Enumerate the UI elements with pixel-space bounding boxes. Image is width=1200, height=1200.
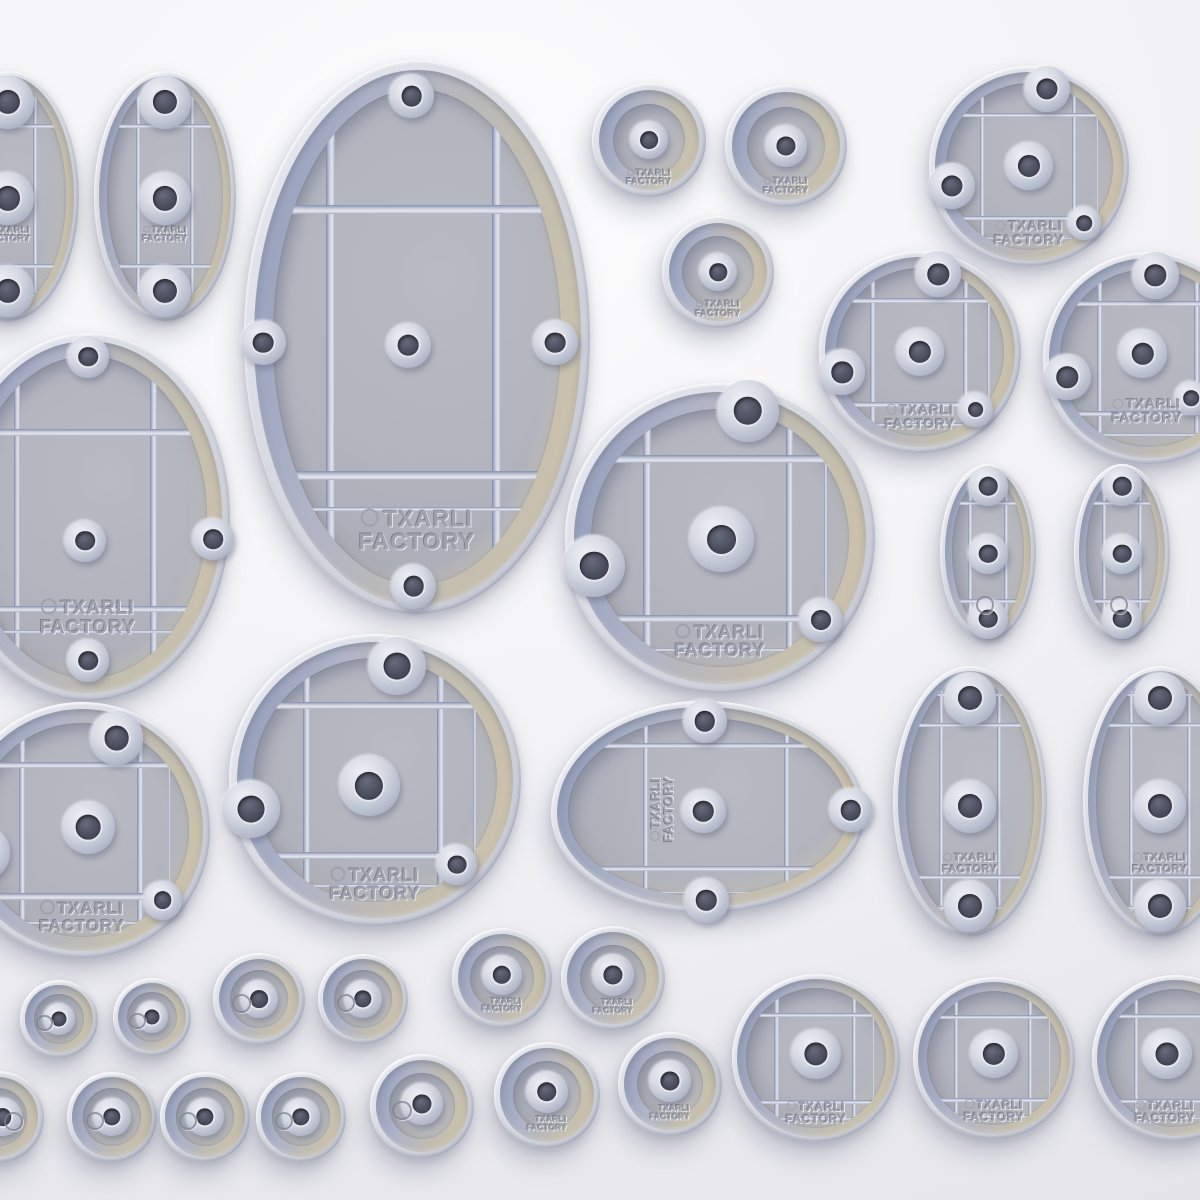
magnet-hole [90, 711, 144, 765]
magnet-hole-center [1018, 155, 1040, 177]
txarli-logo-icon [943, 853, 952, 862]
base-detail-layer: TXARLIFACTORY [913, 977, 1075, 1139]
brand-line-1: TXARLI [359, 507, 476, 530]
brand-engraving: TXARLIFACTORY [482, 997, 523, 1014]
txarli-logo-icon [886, 404, 897, 415]
base-detail-layer: TXARLIFACTORY [725, 85, 847, 207]
magnet-hole [139, 76, 192, 129]
magnet-hole [67, 336, 110, 379]
brand-line-2: FACTORY [40, 618, 136, 637]
brand-line-2: FACTORY [527, 1125, 568, 1133]
brand-word-1: TXARLI [1144, 853, 1187, 865]
magnet-hole [944, 880, 996, 932]
magnet-hole-center [203, 529, 223, 549]
magnet-hole-center [398, 335, 419, 356]
base-round-grid-center-large: TXARLIFACTORY [565, 383, 875, 693]
magnet-hole-center [0, 186, 20, 210]
brand-line-1: TXARLI [39, 900, 125, 918]
base-round-small-b7: TXARLIFACTORY [618, 1032, 722, 1136]
brand-line-1: TXARLI [993, 219, 1064, 233]
base-round-grid-right-a: TXARLIFACTORY [819, 251, 1021, 453]
magnet-hole-center [76, 815, 101, 840]
base-detail-layer: TXARLIFACTORY [1083, 666, 1200, 936]
base-round-plain-med-2: TXARLIFACTORY [725, 85, 847, 207]
brand-line-2: FACTORY [359, 531, 476, 554]
magnet-hole-center [580, 552, 609, 581]
magnet-hole-center [383, 653, 410, 680]
magnet-hole-center [804, 1042, 827, 1065]
magnet-hole [1044, 354, 1091, 401]
brand-word-1: TXARLI [58, 899, 124, 918]
magnet-hole [389, 74, 434, 119]
brand-line-2: FACTORY [593, 1007, 634, 1015]
magnet-hole-center [250, 990, 268, 1008]
base-round-mini-b3 [160, 1072, 250, 1162]
brand-engraving: TXARLIFACTORY [942, 853, 998, 876]
base-round-grid-bottom-3-cut: TXARLIFACTORY [1092, 975, 1200, 1141]
magnet-hole-center [237, 796, 264, 823]
brand-word-1: TXARLI [773, 176, 808, 186]
base-detail-layer [213, 953, 305, 1045]
base-round-grid-left-cut: TXARLIFACTORY [0, 702, 210, 958]
brand-engraving: TXARLIFACTORY [142, 225, 188, 244]
base-detail-layer [370, 1054, 474, 1158]
magnet-hole-center [941, 175, 962, 196]
magnet-hole [0, 265, 34, 318]
magnet-hole-center [640, 131, 658, 149]
base-detail-layer [67, 1072, 157, 1162]
magnet-hole [944, 672, 996, 724]
magnet-hole [143, 881, 181, 919]
magnet-hole [64, 520, 107, 563]
base-round-small-b5 [370, 1054, 474, 1158]
base-round-mini-b4 [256, 1072, 346, 1162]
magnet-hole [1132, 252, 1179, 299]
magnet-hole [1024, 66, 1070, 112]
base-detail-layer: TXARLIFACTORY [94, 71, 236, 321]
brand-word-1: TXARLI [694, 622, 764, 642]
brand-word-1: TXARLI [705, 299, 740, 309]
magnet-hole [970, 1030, 1019, 1079]
magnet-hole [139, 265, 192, 318]
magnet-hole [391, 564, 436, 609]
base-oval-small-edge-left: TXARLIFACTORY [0, 71, 79, 321]
base-detail-layer [318, 954, 408, 1044]
brand-line-2: FACTORY [1132, 865, 1188, 876]
txarli-logo-icon [976, 596, 993, 613]
magnet-hole-center [104, 725, 129, 750]
magnet-hole [1005, 142, 1053, 190]
magnet-hole [1067, 206, 1101, 240]
brand-line-1: TXARLI [674, 623, 765, 641]
magnet-hole-center [78, 651, 98, 671]
magnet-hole [592, 954, 634, 996]
magnet-hole-center [1148, 894, 1172, 918]
brand-line-2: FACTORY [39, 917, 125, 934]
magnet-hole-center [958, 894, 982, 918]
magnet-hole [241, 320, 286, 365]
brand-engraving: TXARLIFACTORY [649, 776, 676, 842]
magnet-hole-center [811, 610, 831, 630]
magnet-hole [0, 76, 34, 129]
magnet-hole-center [695, 711, 715, 731]
base-oval-egg-center: TXARLIFACTORY [551, 701, 865, 913]
magnet-hole [681, 789, 726, 834]
base-round-mini-a2 [113, 978, 191, 1056]
magnet-hole [222, 780, 280, 838]
magnet-hole-center [75, 531, 95, 551]
base-detail-layer: TXARLIFACTORY [565, 383, 875, 693]
magnet-hole [0, 172, 34, 225]
base-round-mini-a3 [213, 953, 305, 1045]
brand-word-1: TXARLI [636, 168, 671, 178]
base-detail-layer: TXARLIFACTORY [0, 71, 79, 321]
brand-engraving: TXARLIFACTORY [329, 867, 420, 904]
magnet-hole [563, 535, 625, 597]
txarli-logo-icon [129, 1013, 145, 1029]
magnet-hole-center [1113, 477, 1132, 496]
base-round-mini-a1 [20, 980, 98, 1058]
base-detail-layer: TXARLIFACTORY [662, 216, 774, 328]
magnet-hole-center [154, 892, 172, 910]
magnet-hole-center [153, 186, 177, 210]
brand-engraving: TXARLIFACTORY [527, 1116, 568, 1133]
txarli-logo-icon [1133, 853, 1142, 862]
magnet-hole-center [1036, 78, 1057, 99]
txarli-logo-icon [676, 624, 691, 639]
magnet-hole-center [958, 794, 982, 818]
magnet-hole [819, 349, 865, 395]
base-round-plain-med-3: TXARLIFACTORY [662, 216, 774, 328]
base-round-small-b6: TXARLIFACTORY [494, 1042, 600, 1148]
txarli-logo-icon [482, 997, 489, 1004]
txarli-logo-icon [331, 867, 346, 882]
magnet-hole [139, 172, 192, 225]
magnet-hole [684, 878, 729, 923]
magnet-hole-center [696, 890, 716, 910]
brand-engraving: TXARLIFACTORY [593, 998, 634, 1015]
magnet-hole-center [545, 332, 566, 353]
magnet-hole-center [776, 136, 795, 155]
magnet-hole [829, 788, 874, 833]
magnet-hole-center [51, 1011, 66, 1026]
base-detail-layer: TXARLIFACTORY [494, 1042, 600, 1148]
magnet-hole-center [144, 1009, 159, 1024]
base-detail-layer [0, 1071, 44, 1163]
brand-line-1: TXARLI [1111, 397, 1182, 411]
base-oval-mini-right-a [940, 464, 1036, 640]
magnet-hole-center [1076, 215, 1092, 231]
magnet-hole [896, 328, 944, 376]
magnet-hole [339, 755, 400, 816]
magnet-hole [192, 518, 235, 561]
magnet-hole [533, 320, 578, 365]
brand-line-2: FACTORY [662, 776, 675, 842]
magnet-hole-center [103, 1108, 120, 1125]
brand-engraving: TXARLIFACTORY [626, 168, 672, 187]
brand-engraving: TXARLIFACTORY [964, 1098, 1025, 1122]
brand-line-2: FACTORY [626, 178, 672, 187]
base-oval-xlarge-top: TXARLIFACTORY [244, 60, 590, 614]
magnet-hole-center [603, 965, 622, 984]
brand-word-1: TXARLI [152, 225, 187, 235]
magnet-hole-center [401, 86, 422, 107]
brand-line-2: FACTORY [1111, 411, 1182, 425]
base-detail-layer: TXARLIFACTORY [561, 926, 665, 1030]
magnet-hole [958, 392, 992, 426]
magnet-hole-center [927, 264, 948, 285]
brand-line-2: FACTORY [695, 309, 741, 318]
magnet-hole-center [78, 347, 98, 367]
magnet-hole [683, 699, 728, 744]
magnet-hole [482, 955, 522, 995]
magnet-hole [791, 1029, 841, 1079]
base-detail-layer [113, 978, 191, 1056]
magnet-hole-center [1184, 390, 1200, 406]
magnet-hole [0, 826, 10, 880]
txarli-logo-icon [527, 1116, 534, 1123]
magnet-hole-center [196, 1108, 213, 1125]
magnet-hole [649, 1060, 691, 1102]
base-round-grid-topright: TXARLIFACTORY [929, 66, 1129, 266]
magnet-hole-center [841, 800, 861, 820]
brand-line-2: FACTORY [993, 233, 1064, 247]
base-detail-layer: TXARLIFACTORY [244, 60, 590, 614]
brand-engraving: TXARLIFACTORY [650, 1104, 691, 1121]
magnet-hole-center [1145, 265, 1166, 286]
magnet-hole [1102, 466, 1142, 506]
magnet-hole-center [979, 544, 998, 563]
base-detail-layer [1074, 464, 1170, 640]
base-round-small-a6: TXARLIFACTORY [561, 926, 665, 1030]
magnet-hole-center [734, 397, 763, 426]
magnet-hole-center [153, 279, 177, 303]
brand-engraving: TXARLIFACTORY [359, 507, 476, 554]
base-detail-layer [160, 1072, 250, 1162]
magnet-hole-center [253, 332, 274, 353]
brand-engraving: TXARLIFACTORY [695, 300, 741, 319]
brand-line-2: FACTORY [884, 417, 955, 431]
brand-line-2: FACTORY [142, 235, 188, 244]
magnet-hole [62, 801, 116, 855]
base-oval-large-edge-left: TXARLIFACTORY [0, 333, 230, 701]
magnet-hole-center [983, 1043, 1005, 1065]
base-detail-layer: TXARLIFACTORY [551, 701, 865, 913]
brand-line-2: FACTORY [674, 642, 765, 660]
brand-engraving: TXARLIFACTORY [786, 1100, 847, 1124]
magnet-hole [968, 534, 1008, 574]
base-detail-layer [256, 1072, 346, 1162]
txarli-logo-icon [143, 225, 151, 233]
magnet-hole-center [693, 801, 713, 821]
magnet-hole [717, 380, 779, 442]
magnet-hole [689, 507, 754, 572]
brand-engraving: TXARLIFACTORY [763, 177, 809, 196]
magnet-hole-center [1057, 366, 1078, 387]
base-oval-mini-right-b [1074, 464, 1170, 640]
brand-line-2: FACTORY [942, 865, 998, 876]
brand-line-2: FACTORY [482, 1006, 523, 1014]
magnet-hole [799, 598, 842, 641]
magnet-hole-center [447, 855, 466, 874]
magnet-hole [765, 125, 806, 166]
txarli-logo-icon [232, 994, 251, 1013]
magnet-hole [67, 639, 110, 682]
txarli-logo-icon [1136, 1101, 1145, 1110]
brand-line-2: FACTORY [329, 885, 420, 903]
txarli-logo-icon [650, 831, 660, 841]
brand-word-1: TXARLI [60, 598, 134, 619]
base-oval-med-right-b-cut: TXARLIFACTORY [1083, 666, 1200, 936]
txarli-logo-icon [4, 1112, 23, 1131]
magnet-hole [1134, 880, 1186, 932]
base-round-plain-med-1: TXARLIFACTORY [592, 83, 706, 197]
magnet-hole-center [709, 263, 727, 281]
magnet-hole-center [537, 1082, 556, 1101]
magnet-hole-center [707, 525, 737, 555]
base-detail-layer: TXARLIFACTORY [618, 1032, 722, 1136]
base-detail-layer: TXARLIFACTORY [229, 634, 521, 926]
base-detail-layer: TXARLIFACTORY [0, 333, 230, 701]
brand-word-1: TXARLI [349, 866, 419, 886]
magnet-hole-center [493, 966, 511, 984]
magnet-hole-center [0, 90, 20, 114]
base-detail-layer [940, 464, 1036, 640]
txarli-logo-icon [650, 1104, 657, 1111]
magnet-hole [968, 466, 1008, 506]
txarli-logo-icon [696, 300, 704, 308]
brand-line-2: FACTORY [964, 1111, 1025, 1123]
magnet-hole-center [292, 1108, 309, 1125]
brand-engraving: TXARLIFACTORY [40, 599, 136, 638]
base-detail-layer: TXARLIFACTORY [929, 66, 1129, 266]
txarli-logo-icon [40, 900, 55, 915]
base-round-grid-bottom-2: TXARLIFACTORY [913, 977, 1075, 1139]
base-round-mini-a4 [318, 954, 408, 1044]
base-round-mini-b2 [67, 1072, 157, 1162]
magnet-hole [630, 121, 669, 160]
base-detail-layer: TXARLIFACTORY [893, 666, 1047, 936]
base-round-grid-mid-large: TXARLIFACTORY [229, 634, 521, 926]
base-round-grid-bottom-1: TXARLIFACTORY [732, 974, 900, 1142]
magnet-hole-center [1148, 686, 1172, 710]
brand-line-2: FACTORY [1135, 1112, 1196, 1124]
txarli-logo-icon [995, 220, 1006, 231]
magnet-hole-center [412, 1094, 431, 1113]
magnet-hole-center [355, 772, 383, 800]
base-detail-layer: TXARLIFACTORY [452, 928, 552, 1028]
magnet-hole-center [832, 362, 853, 383]
brand-line-1: TXARLI [40, 599, 136, 619]
base-detail-layer: TXARLIFACTORY [0, 702, 210, 958]
brand-engraving: TXARLIFACTORY [993, 219, 1064, 248]
brand-engraving: TXARLIFACTORY [39, 900, 125, 935]
magnet-hole [368, 637, 426, 695]
brand-engraving: TXARLIFACTORY [1132, 853, 1188, 876]
txarli-logo-icon [41, 599, 57, 615]
txarli-logo-icon [1113, 398, 1124, 409]
base-round-mini-b1-cut [0, 1071, 44, 1163]
brand-line-2: FACTORY [0, 235, 31, 244]
brand-word-1: TXARLI [383, 505, 473, 531]
brand-word-1: TXARLI [954, 853, 997, 865]
magnet-hole-center [1155, 1042, 1178, 1065]
txarli-logo-icon [965, 1099, 974, 1108]
brand-line-2: FACTORY [763, 186, 809, 195]
magnet-hole-center [1148, 794, 1172, 818]
magnet-hole [699, 253, 737, 291]
magnet-hole [1118, 329, 1167, 378]
base-round-small-a5: TXARLIFACTORY [452, 928, 552, 1028]
brand-line-2: FACTORY [786, 1113, 847, 1125]
magnet-hole [915, 251, 961, 297]
magnet-hole-center [0, 279, 20, 303]
txarli-logo-icon [787, 1101, 796, 1110]
magnet-hole [929, 163, 975, 209]
magnet-hole-center [354, 990, 371, 1007]
base-oval-small-top: TXARLIFACTORY [94, 71, 236, 321]
txarli-logo-icon [627, 168, 635, 176]
magnet-hole [1134, 672, 1186, 724]
magnet-hole [386, 323, 431, 368]
magnet-hole [436, 844, 477, 885]
brand-line-1: TXARLI [884, 402, 955, 416]
txarli-logo-icon [764, 177, 772, 185]
magnet-hole-center [958, 686, 982, 710]
magnet-hole [944, 780, 996, 832]
base-detail-layer [20, 980, 98, 1058]
magnet-hole [1102, 534, 1142, 574]
brand-line-2: FACTORY [650, 1113, 691, 1121]
brand-engraving: TXARLIFACTORY [674, 623, 765, 660]
magnet-hole [1142, 1029, 1192, 1079]
magnet-hole-center [968, 402, 984, 418]
base-detail-layer: TXARLIFACTORY [592, 83, 706, 197]
brand-engraving: TXARLIFACTORY [884, 402, 955, 431]
base-detail-layer: TXARLIFACTORY [732, 974, 900, 1142]
brand-engraving: TXARLIFACTORY [1135, 1100, 1196, 1124]
txarli-logo-icon [36, 1015, 52, 1031]
magnet-hole-center [909, 341, 931, 363]
magnet-hole [526, 1071, 568, 1113]
base-oval-med-right-a: TXARLIFACTORY [893, 666, 1047, 936]
magnet-hole-center [153, 90, 177, 114]
txarli-logo-icon [1110, 596, 1127, 613]
brand-engraving: TXARLIFACTORY [0, 225, 31, 244]
render-canvas: TXARLIFACTORYTXARLIFACTORYTXARLIFACTORYT… [0, 0, 1200, 1200]
txarli-logo-icon [361, 509, 379, 527]
base-detail-layer: TXARLIFACTORY [819, 251, 1021, 453]
magnet-hole-center [979, 477, 998, 496]
brand-word-1: TXARLI [0, 225, 30, 235]
brand-engraving: TXARLIFACTORY [1111, 397, 1182, 426]
magnet-hole-center [660, 1071, 679, 1090]
magnet-hole-center [1131, 343, 1153, 365]
brand-line-1: TXARLI [329, 867, 420, 885]
base-round-grid-right-b-cut: TXARLIFACTORY [1043, 252, 1200, 464]
magnet-hole-center [403, 576, 424, 597]
magnet-hole [1134, 780, 1186, 832]
magnet-hole-center [1113, 544, 1132, 563]
txarli-logo-icon [593, 998, 600, 1005]
